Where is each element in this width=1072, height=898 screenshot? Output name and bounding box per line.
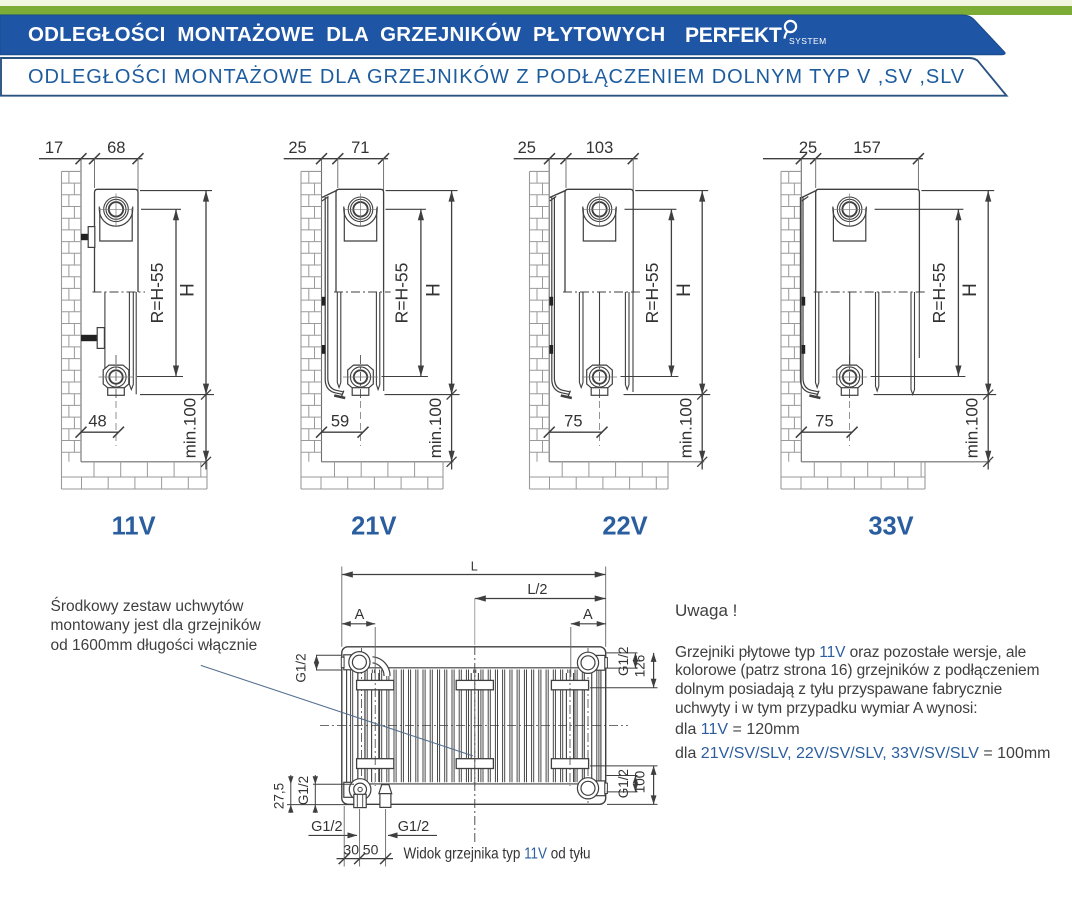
svg-text:G1/2: G1/2 bbox=[311, 819, 342, 835]
svg-text:103: 103 bbox=[586, 139, 614, 157]
svg-text:R=H-55: R=H-55 bbox=[147, 263, 167, 324]
svg-text:59: 59 bbox=[331, 412, 349, 430]
svg-text:A: A bbox=[355, 607, 365, 623]
svg-text:75: 75 bbox=[564, 412, 582, 430]
svg-text:22V: 22V bbox=[602, 513, 647, 541]
svg-text:min.100: min.100 bbox=[181, 398, 200, 458]
svg-text:68: 68 bbox=[107, 139, 125, 157]
svg-text:G1/2: G1/2 bbox=[616, 769, 631, 798]
svg-text:100: 100 bbox=[633, 771, 648, 794]
svg-text:25: 25 bbox=[288, 139, 306, 157]
svg-text:G1/2: G1/2 bbox=[296, 776, 311, 805]
svg-text:50: 50 bbox=[363, 842, 379, 858]
svg-text:G1/2: G1/2 bbox=[294, 653, 309, 682]
svg-text:75: 75 bbox=[815, 412, 833, 430]
svg-text:R=H-55: R=H-55 bbox=[642, 263, 662, 324]
svg-text:H: H bbox=[423, 283, 444, 297]
svg-text:25: 25 bbox=[518, 139, 536, 157]
svg-text:G1/2: G1/2 bbox=[616, 647, 631, 676]
svg-text:33V: 33V bbox=[868, 513, 913, 541]
svg-text:17: 17 bbox=[45, 139, 63, 157]
svg-text:25: 25 bbox=[799, 139, 817, 157]
svg-text:48: 48 bbox=[88, 412, 106, 430]
svg-text:71: 71 bbox=[351, 139, 369, 157]
svg-text:11V: 11V bbox=[112, 513, 156, 541]
svg-text:min.100: min.100 bbox=[963, 398, 982, 458]
svg-text:30: 30 bbox=[343, 842, 359, 858]
svg-text:L: L bbox=[471, 560, 478, 574]
svg-text:126: 126 bbox=[633, 655, 648, 678]
svg-text:R=H-55: R=H-55 bbox=[929, 263, 949, 324]
svg-text:H: H bbox=[178, 283, 199, 297]
svg-text:H: H bbox=[960, 283, 981, 297]
svg-text:A: A bbox=[583, 607, 593, 623]
svg-text:min.100: min.100 bbox=[426, 398, 445, 458]
svg-text:L/2: L/2 bbox=[527, 582, 547, 598]
svg-text:21V: 21V bbox=[351, 513, 396, 541]
svg-text:G1/2: G1/2 bbox=[398, 819, 429, 835]
svg-text:Widok grzejnika typ 11V od tył: Widok grzejnika typ 11V od tyłu bbox=[404, 846, 591, 863]
svg-text:min.100: min.100 bbox=[677, 398, 696, 458]
svg-text:27,5: 27,5 bbox=[272, 783, 287, 809]
svg-text:157: 157 bbox=[853, 139, 881, 157]
svg-text:R=H-55: R=H-55 bbox=[392, 263, 412, 324]
svg-text:H: H bbox=[674, 283, 695, 297]
